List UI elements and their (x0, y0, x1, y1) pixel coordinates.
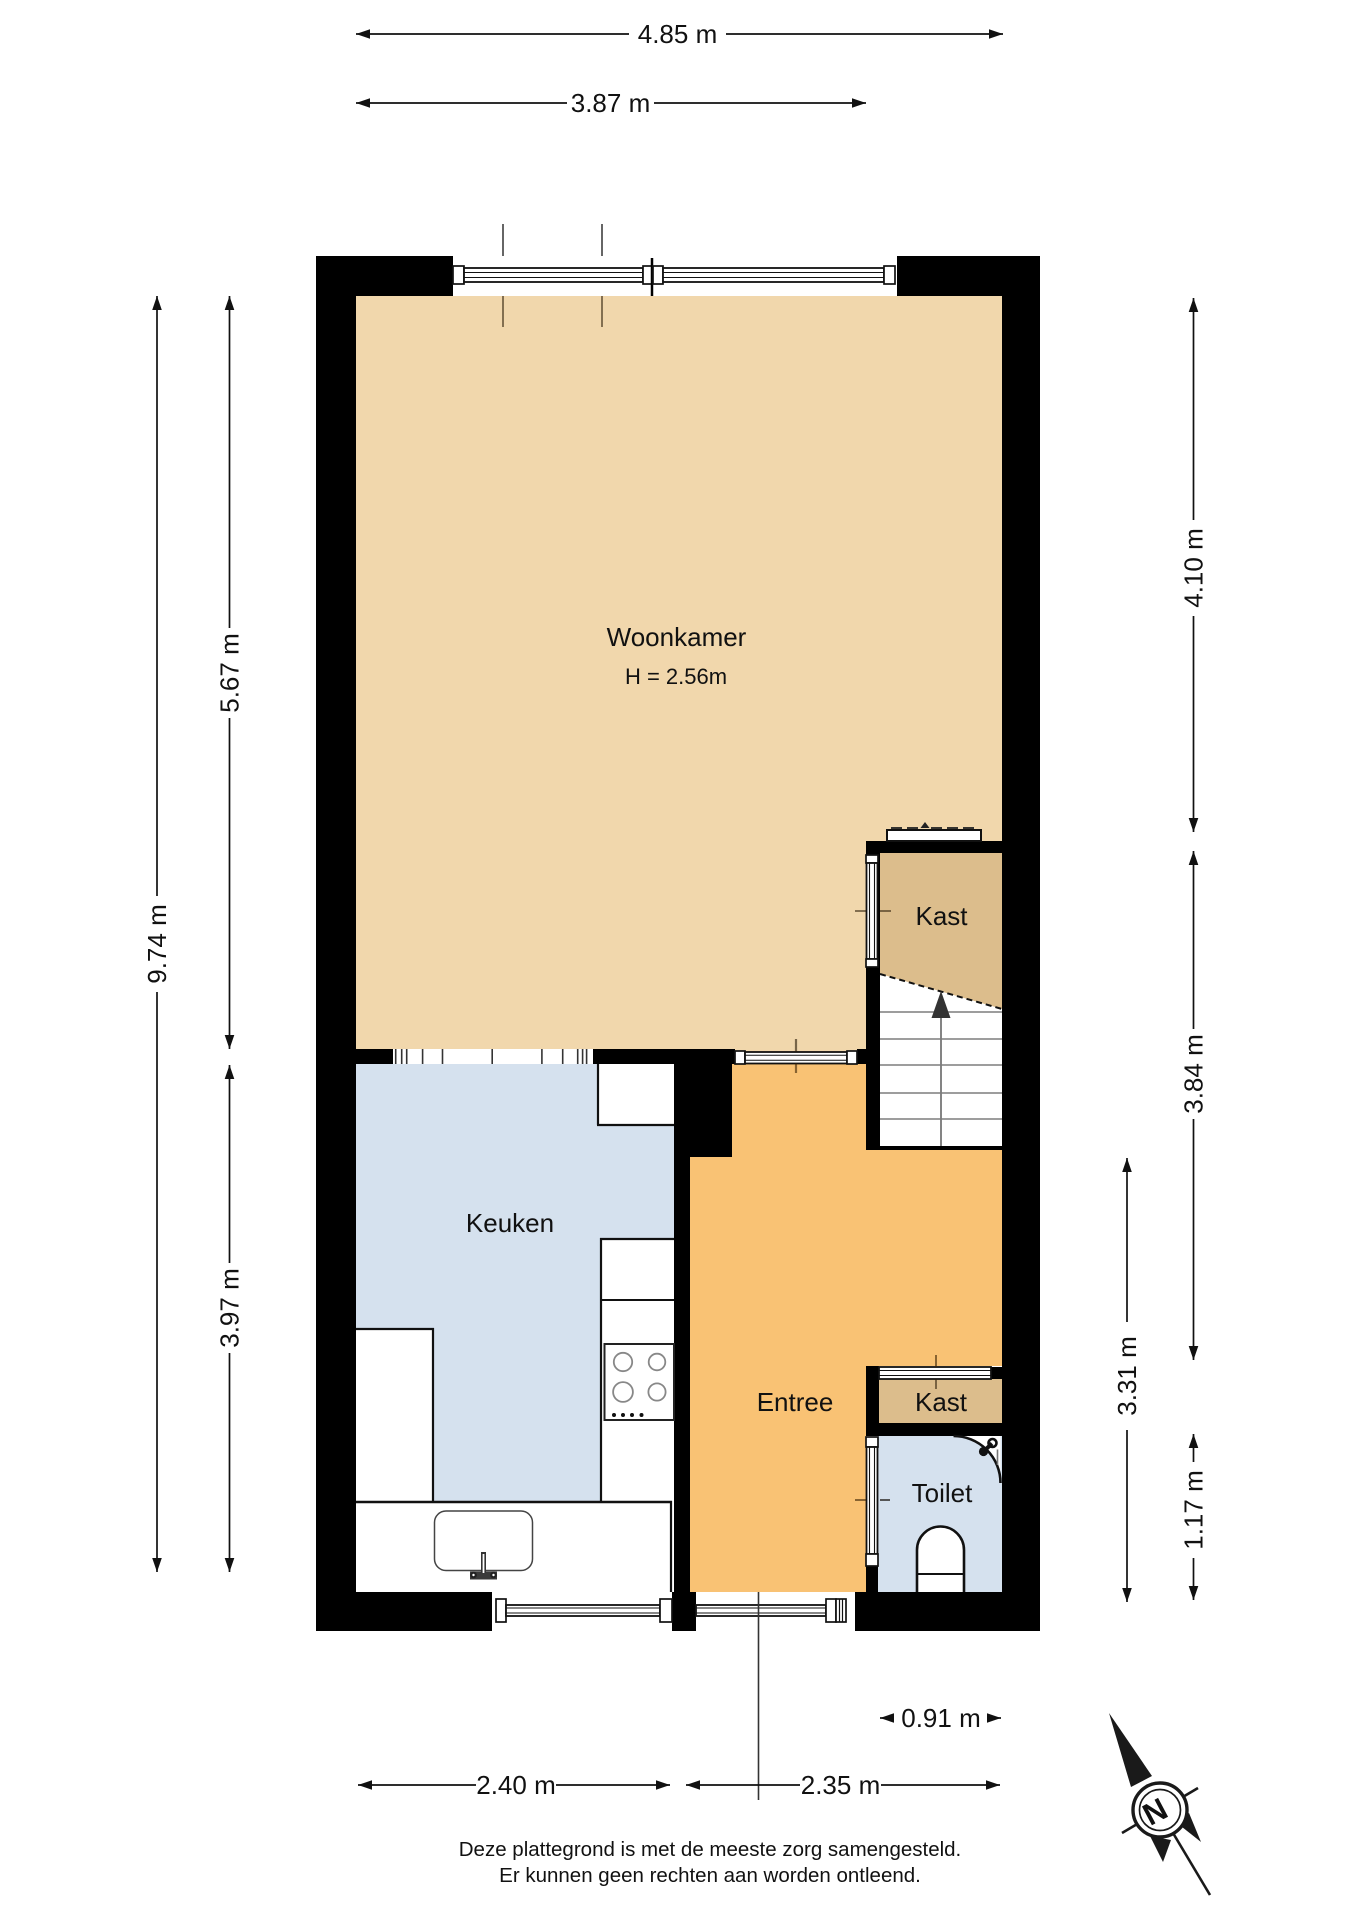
svg-text:Woonkamer: Woonkamer (607, 622, 747, 652)
svg-text:Kast: Kast (915, 901, 968, 931)
svg-text:Kast: Kast (915, 1387, 968, 1417)
svg-text:1.17 m: 1.17 m (1179, 1470, 1209, 1550)
svg-text:3.87 m: 3.87 m (571, 88, 651, 118)
svg-text:4.85 m: 4.85 m (638, 19, 718, 49)
svg-text:3.31 m: 3.31 m (1112, 1336, 1142, 1416)
svg-text:0.91 m: 0.91 m (901, 1703, 981, 1733)
svg-text:Entree: Entree (757, 1387, 834, 1417)
svg-text:Er kunnen geen rechten aan wor: Er kunnen geen rechten aan worden ontlee… (499, 1864, 921, 1887)
svg-text:Keuken: Keuken (466, 1208, 554, 1238)
svg-text:9.74 m: 9.74 m (142, 904, 172, 984)
svg-text:H = 2.56m: H = 2.56m (625, 664, 727, 689)
svg-text:3.97 m: 3.97 m (215, 1268, 245, 1348)
svg-text:2.35 m: 2.35 m (801, 1770, 881, 1800)
svg-text:Toilet: Toilet (912, 1478, 973, 1508)
svg-text:2.40 m: 2.40 m (476, 1770, 556, 1800)
svg-text:3.84 m: 3.84 m (1179, 1034, 1209, 1114)
svg-text:Deze plattegrond is met de mee: Deze plattegrond is met de meeste zorg s… (459, 1838, 962, 1861)
svg-text:5.67 m: 5.67 m (215, 633, 245, 713)
svg-text:4.10 m: 4.10 m (1179, 528, 1209, 608)
